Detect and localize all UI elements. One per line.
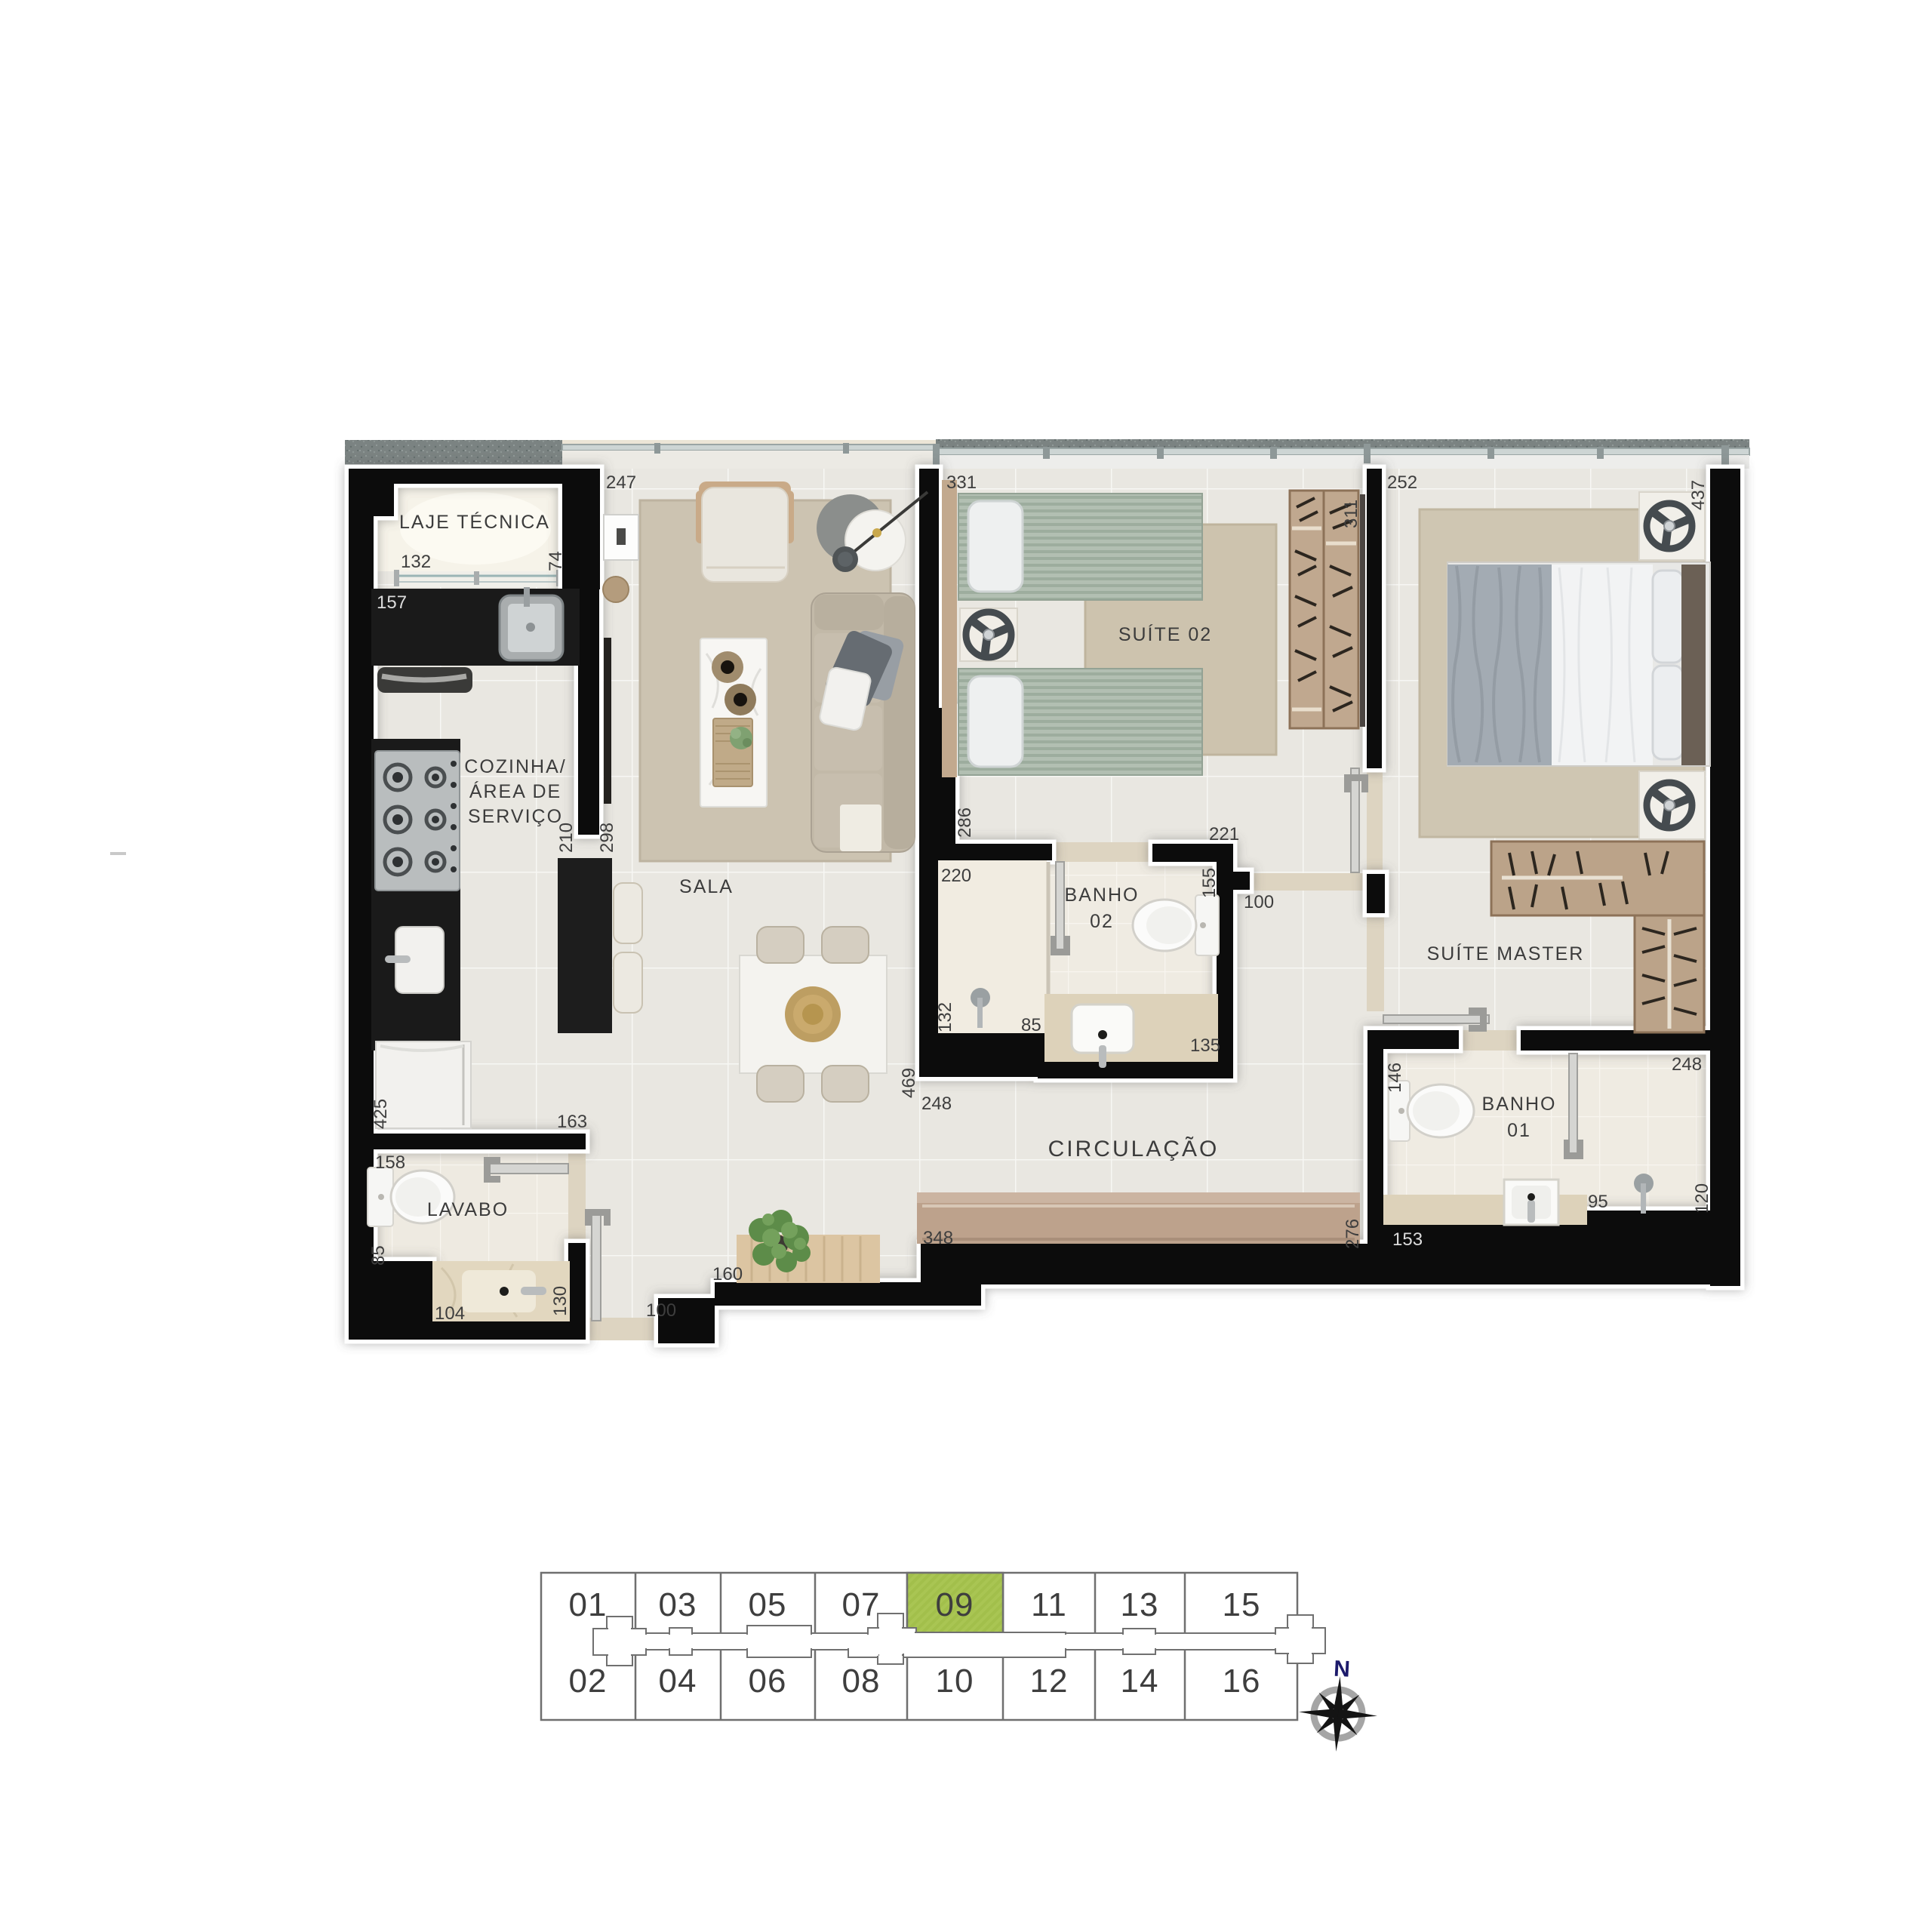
svg-text:11: 11: [1031, 1586, 1067, 1623]
svg-text:210: 210: [556, 823, 577, 853]
svg-text:N: N: [1333, 1657, 1350, 1682]
svg-text:220: 220: [941, 866, 971, 886]
svg-text:01: 01: [1507, 1120, 1531, 1141]
svg-text:CIRCULAÇÃO: CIRCULAÇÃO: [1048, 1136, 1220, 1161]
svg-text:100: 100: [646, 1300, 676, 1321]
svg-text:437: 437: [1688, 480, 1709, 510]
svg-text:BANHO: BANHO: [1065, 884, 1140, 906]
svg-text:153: 153: [1392, 1229, 1423, 1250]
svg-text:157: 157: [377, 592, 407, 613]
svg-text:SALA: SALA: [679, 876, 734, 897]
svg-text:286: 286: [955, 808, 975, 838]
svg-text:221: 221: [1209, 824, 1239, 844]
svg-text:15: 15: [1223, 1586, 1261, 1623]
svg-text:146: 146: [1385, 1063, 1405, 1093]
svg-text:05: 05: [749, 1586, 787, 1623]
svg-text:248: 248: [1672, 1054, 1702, 1075]
svg-text:163: 163: [557, 1112, 587, 1132]
svg-text:248: 248: [921, 1094, 952, 1114]
svg-text:03: 03: [659, 1586, 697, 1623]
svg-text:331: 331: [946, 472, 977, 493]
svg-text:07: 07: [842, 1586, 881, 1623]
svg-text:252: 252: [1387, 472, 1417, 493]
svg-text:COZINHA/: COZINHA/: [464, 756, 566, 777]
svg-text:74: 74: [546, 551, 566, 571]
svg-text:155: 155: [1199, 868, 1220, 898]
svg-text:04: 04: [659, 1663, 697, 1700]
svg-text:08: 08: [842, 1663, 881, 1700]
svg-text:14: 14: [1121, 1663, 1159, 1700]
svg-text:276: 276: [1343, 1219, 1363, 1249]
svg-text:13: 13: [1121, 1586, 1159, 1623]
svg-text:BANHO: BANHO: [1482, 1094, 1557, 1115]
svg-text:09: 09: [936, 1586, 974, 1623]
svg-text:02: 02: [1090, 911, 1114, 932]
svg-text:160: 160: [712, 1264, 743, 1284]
svg-text:120: 120: [1692, 1183, 1712, 1214]
svg-text:02: 02: [569, 1663, 608, 1700]
svg-text:85: 85: [368, 1245, 389, 1266]
svg-text:SUÍTE MASTER: SUÍTE MASTER: [1427, 943, 1585, 964]
svg-text:SERVIÇO: SERVIÇO: [468, 806, 563, 827]
svg-text:SUÍTE 02: SUÍTE 02: [1118, 623, 1212, 645]
svg-text:425: 425: [371, 1099, 391, 1129]
svg-text:LAJE TÉCNICA: LAJE TÉCNICA: [399, 511, 550, 533]
svg-text:311: 311: [1341, 500, 1361, 528]
svg-text:16: 16: [1223, 1663, 1261, 1700]
svg-text:95: 95: [1588, 1192, 1608, 1212]
svg-text:12: 12: [1030, 1663, 1069, 1700]
svg-text:06: 06: [749, 1663, 787, 1700]
svg-text:298: 298: [597, 823, 617, 853]
svg-text:01: 01: [569, 1586, 608, 1623]
svg-text:132: 132: [935, 1002, 955, 1032]
svg-text:ÁREA DE: ÁREA DE: [469, 780, 561, 802]
svg-text:100: 100: [1244, 892, 1274, 912]
svg-text:130: 130: [550, 1286, 571, 1316]
svg-text:158: 158: [375, 1152, 405, 1173]
svg-text:348: 348: [923, 1228, 953, 1248]
svg-text:104: 104: [435, 1303, 465, 1324]
svg-text:132: 132: [401, 552, 431, 572]
svg-text:247: 247: [606, 472, 636, 493]
svg-text:85: 85: [1021, 1015, 1041, 1035]
svg-text:10: 10: [936, 1663, 974, 1700]
svg-text:LAVABO: LAVABO: [427, 1199, 509, 1220]
svg-text:135: 135: [1190, 1035, 1220, 1056]
svg-text:469: 469: [899, 1068, 919, 1098]
